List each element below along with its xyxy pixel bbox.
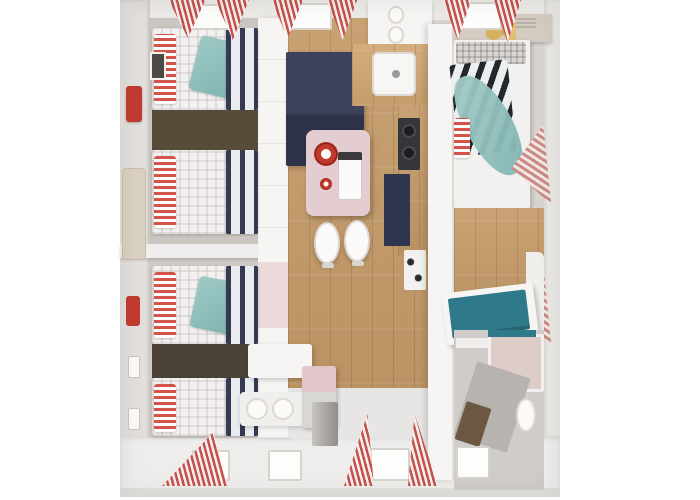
bed3-pillow — [154, 272, 176, 338]
bed3-runner — [226, 266, 258, 344]
floorplan-scene — [0, 0, 700, 500]
red-wall-lamp1 — [126, 86, 142, 122]
bottom-window-3 — [370, 448, 410, 481]
bed4-pillow — [154, 384, 176, 432]
sink-basin-1 — [388, 6, 404, 24]
bathroom-window — [456, 446, 490, 479]
bottom-window-2 — [268, 450, 302, 481]
plate-small — [320, 178, 332, 190]
nightstand-gap1 — [152, 110, 258, 150]
sink-basin-2 — [388, 26, 404, 44]
chair-2-base — [352, 261, 364, 266]
entry-door — [122, 168, 146, 260]
master-red-pillow — [454, 118, 470, 158]
wardrobe-pink-panel — [258, 262, 290, 328]
faucet — [392, 70, 400, 78]
door-knob — [516, 398, 536, 432]
plate-large — [314, 142, 338, 166]
right-wall — [544, 0, 560, 497]
bed2-pillow — [154, 156, 176, 228]
wall-outlet1 — [128, 356, 140, 378]
chair-1-base — [322, 263, 334, 268]
bed1-runner — [226, 28, 258, 110]
hob-burner-2 — [402, 146, 416, 160]
chair-1 — [314, 222, 340, 264]
kitchen-items — [404, 250, 426, 290]
partition-wall — [428, 24, 454, 480]
air-vent-2 — [516, 18, 536, 28]
bench-teal-end — [488, 330, 536, 337]
chair-2 — [344, 220, 370, 262]
red-wall-lamp2 — [126, 296, 140, 326]
mirror-box — [312, 402, 338, 446]
counter-drum-1 — [246, 398, 268, 420]
counter-drum-2 — [272, 398, 294, 420]
napkin-box-top — [338, 152, 362, 160]
picture-frame — [150, 52, 166, 80]
bed2-runner — [226, 150, 258, 234]
nightstand-gap2 — [152, 344, 258, 378]
navy-base-cabinet — [384, 174, 410, 246]
wall-outlet2 — [128, 408, 140, 430]
pink-bench-seat — [302, 366, 336, 392]
hob-burner-1 — [402, 124, 416, 138]
